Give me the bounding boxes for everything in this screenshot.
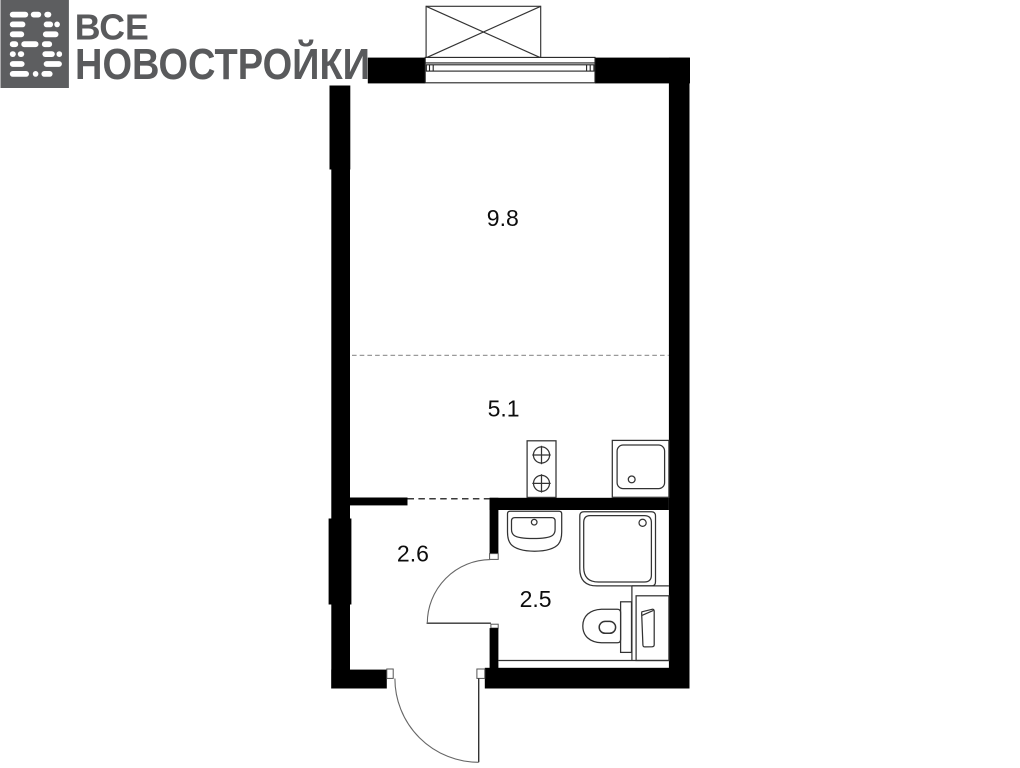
svg-text:2.6: 2.6 xyxy=(397,540,429,566)
svg-text:2.5: 2.5 xyxy=(520,586,552,612)
svg-text:9.8: 9.8 xyxy=(487,205,519,231)
svg-text:5.1: 5.1 xyxy=(488,396,520,422)
svg-text:НОВОСТРОЙКИ: НОВОСТРОЙКИ xyxy=(75,38,370,89)
